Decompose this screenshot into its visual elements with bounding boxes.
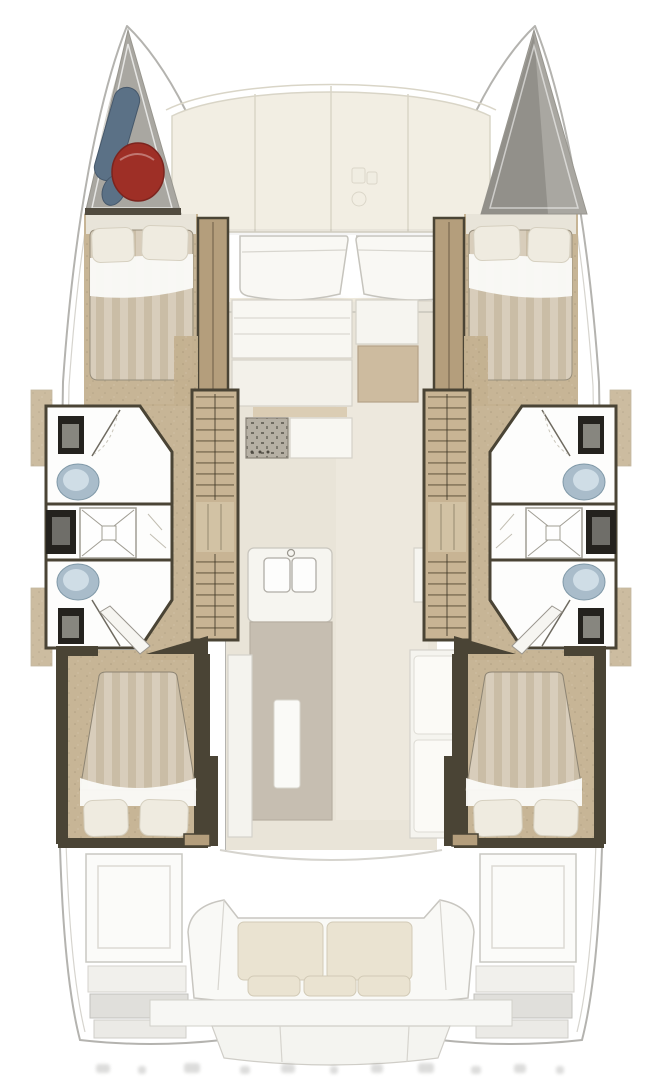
galley (232, 300, 352, 458)
aft-deck-band (150, 1000, 512, 1026)
settee-cushion (414, 656, 458, 734)
mooring-buoy-icon (112, 143, 164, 201)
table-runner (274, 700, 300, 788)
center-platform (212, 1026, 450, 1065)
chart-desk (358, 346, 418, 402)
nav-seat (356, 300, 418, 344)
bench-seat-cushion (248, 976, 300, 996)
galley-shelf (253, 407, 347, 417)
aft-cockpit (188, 850, 474, 1014)
nav-station (356, 300, 418, 402)
stove-knob (251, 451, 254, 454)
stove-knob (267, 451, 270, 454)
bench-seat-cushion (358, 976, 410, 996)
port-aft-cabinet (228, 655, 252, 837)
foredeck (166, 85, 496, 236)
saloon-table (250, 622, 332, 820)
stove-knob (259, 451, 262, 454)
locker-aft-wall (85, 208, 181, 215)
galley-counter-mid (232, 360, 352, 406)
catamaran-floorplan (0, 0, 662, 1080)
galley-counter-forward (232, 300, 352, 358)
bench-cushion (327, 922, 412, 980)
floorplan-canvas (0, 0, 662, 1080)
cockpit-front-edge (220, 850, 442, 860)
galley-counter-aft (290, 418, 352, 458)
sink-basin (292, 558, 316, 592)
bench-seat-cushion (304, 976, 356, 996)
bench-cushion (238, 922, 323, 980)
sink-basin (264, 558, 290, 592)
galley-island (248, 548, 332, 622)
forward-seat-port (240, 236, 348, 300)
